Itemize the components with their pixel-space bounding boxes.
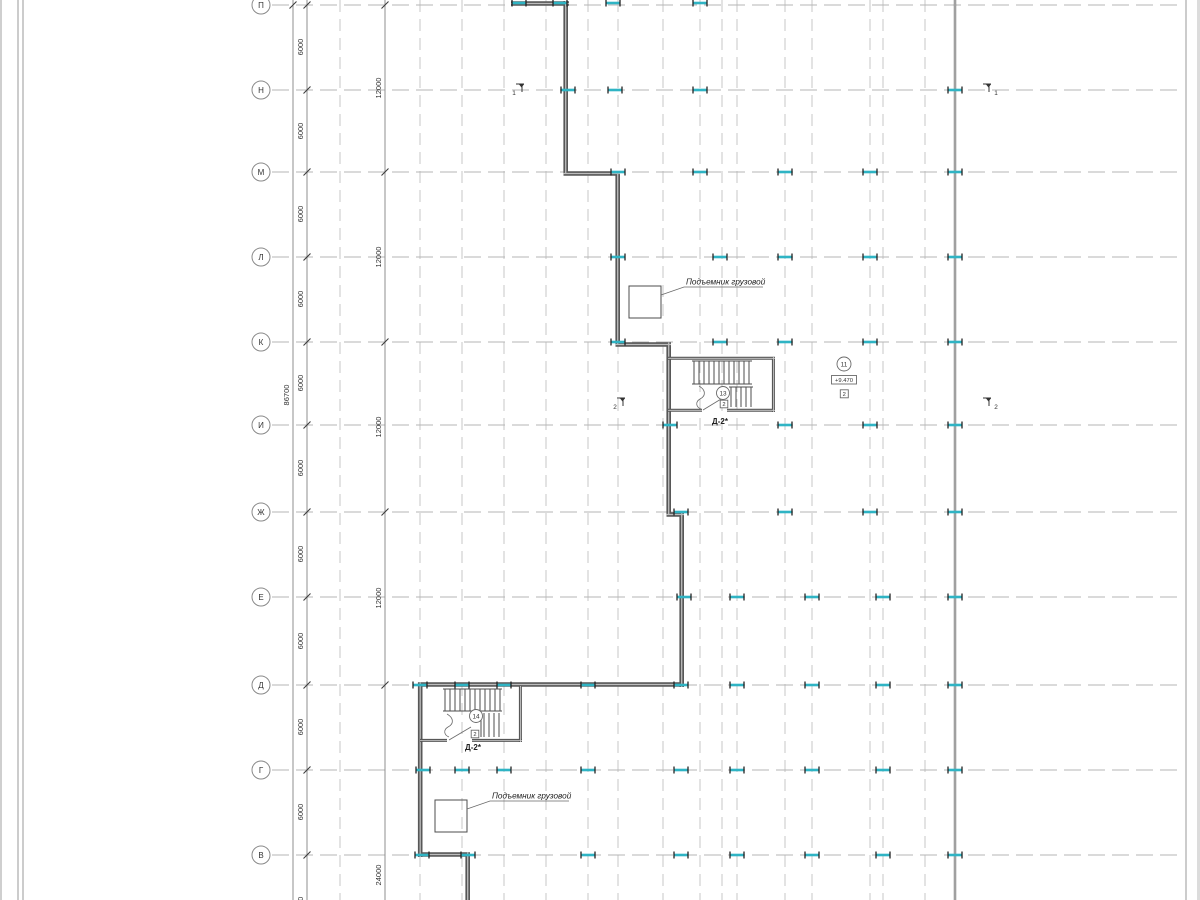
dim-label-bay: 6000 [296, 804, 305, 821]
dim-label-bay: 6000 [296, 460, 305, 477]
wall-outline [418, 1, 684, 900]
elevator-label: Подъемник грузовой [492, 792, 572, 801]
dim-label-double-bay: 12000 [374, 247, 383, 268]
section-mark-number: 2 [613, 404, 617, 411]
dim-label-bay: 6000 [296, 546, 305, 563]
axis-label: К [259, 338, 264, 347]
keynote-number: 11 [841, 362, 848, 369]
axis-label: Г [259, 766, 264, 775]
dim-label-double-bay: 12000 [374, 588, 383, 609]
freight-elevator-1: Подъемник грузовой [629, 278, 766, 319]
elevator-shaft-box [629, 286, 661, 318]
axis-row-lines [272, 5, 1183, 855]
room-number: 14 [472, 713, 480, 720]
door-tag: 2 [473, 732, 476, 738]
section-mark-number: 1 [994, 90, 998, 97]
dim-label-bay: 6000 [296, 291, 305, 308]
door-swing [449, 727, 471, 740]
stair-winder [445, 714, 453, 737]
sheet-frame [0, 0, 1200, 900]
door-tag: 2 [843, 392, 846, 398]
dim-label-bay: 6000 [296, 39, 305, 56]
axis-label: Е [258, 593, 263, 602]
stairwell-2: 14 2 Д-2* [420, 686, 522, 752]
stair-winder [697, 386, 705, 409]
axis-label: Д [258, 681, 264, 690]
vertical-gridlines [340, 0, 925, 900]
dim-label-double-bay: 12000 [374, 78, 383, 99]
section-mark-number: 2 [994, 404, 998, 411]
axis-label: П [258, 1, 264, 10]
dim-label-double-bay: 12000 [374, 417, 383, 438]
dim-label-bay: 6000 [296, 206, 305, 223]
level-mark-group: 11 +9.470 2 [832, 357, 857, 398]
dim-label-bay-cut: 7200 [296, 897, 305, 900]
dim-label-double-bay: 24000 [374, 865, 383, 886]
leader-line [661, 287, 763, 295]
dim-label-total: 86700 [282, 385, 291, 406]
sheet-edge-left [0, 0, 2, 900]
wall-core [418, 1, 684, 900]
axis-label: В [258, 851, 263, 860]
dim-label-bay: 6000 [296, 123, 305, 140]
stair-label: Д-2* [465, 743, 482, 752]
floor-plan-canvas: 13 2 Д-2* 14 2 Д-2* Подъемник грузовой П… [0, 0, 1200, 900]
axis-label: Л [258, 253, 263, 262]
section-mark-number: 1 [512, 90, 516, 97]
elevation-value: +9.470 [835, 378, 853, 384]
steel-columns [413, 0, 962, 859]
dim-label-bay: 6000 [296, 375, 305, 392]
dim-label-bay: 6000 [296, 633, 305, 650]
building-walls [418, 0, 955, 900]
axis-label: Н [258, 86, 264, 95]
elevator-label: Подъемник грузовой [686, 278, 766, 287]
axis-label: И [258, 421, 264, 430]
door-tag: 2 [722, 402, 725, 408]
dimension-labels: 6000600060006000600060006000600060006000… [282, 39, 383, 900]
axis-label: М [258, 168, 265, 177]
axis-bubbles: ПНМЛКИЖЕДГВ [252, 0, 270, 864]
freight-elevator-2: Подъемник грузовой [435, 792, 572, 833]
dim-label-bay: 6000 [296, 719, 305, 736]
room-number: 13 [719, 390, 727, 397]
stair-label: Д-2* [712, 417, 729, 426]
axis-label: Ж [257, 508, 265, 517]
leader-line [467, 801, 569, 809]
